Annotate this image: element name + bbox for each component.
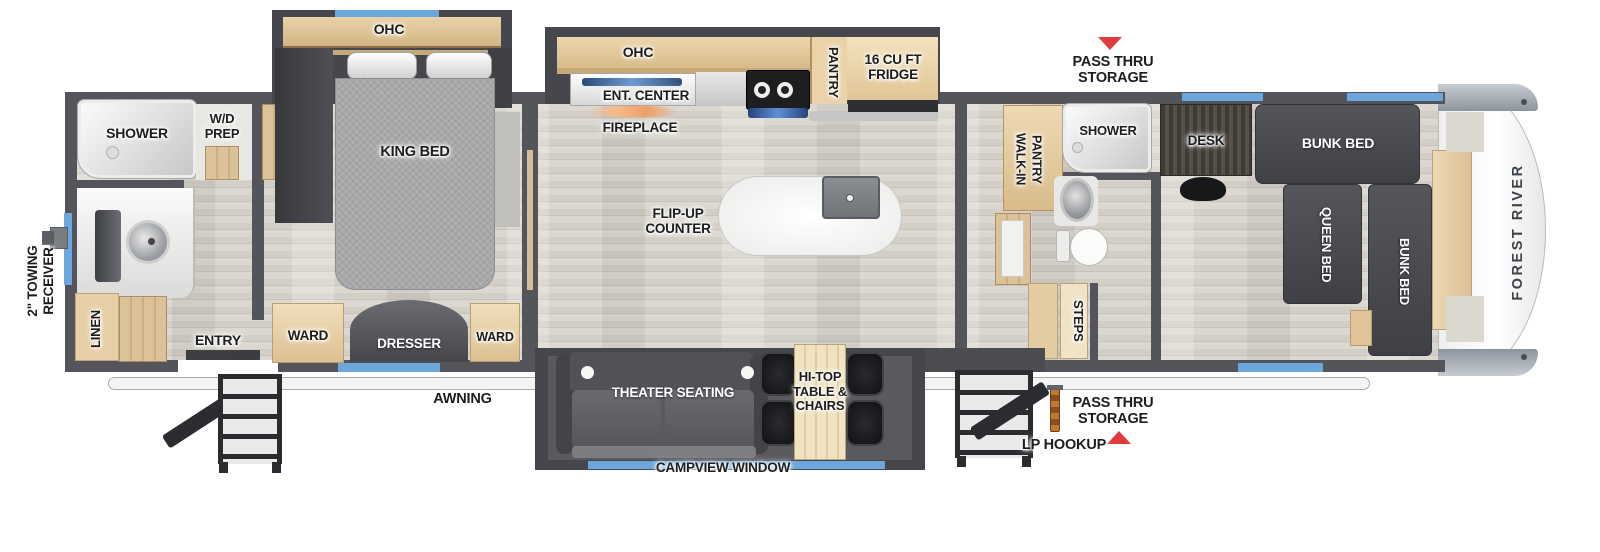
window-bottom-1 — [338, 363, 440, 372]
wall-midbath-bunkroom — [1151, 172, 1161, 360]
label-awning: AWNING — [415, 391, 510, 407]
window-top-1 — [1182, 93, 1263, 101]
king-pillow-right — [426, 52, 492, 80]
dresser — [350, 300, 468, 362]
label-steps: STEPS — [1063, 287, 1085, 355]
window-bottom-2 — [1238, 363, 1323, 372]
midbath-cabinet-door — [1001, 220, 1024, 277]
king-bed — [335, 78, 495, 290]
lp-hookup-cap — [1047, 385, 1063, 390]
label-campview-window: CAMPVIEW WINDOW — [648, 460, 798, 475]
wall-living-midbath — [955, 104, 967, 360]
mid-shower-drain — [1072, 142, 1083, 153]
desk-chair — [1180, 177, 1226, 201]
tv — [582, 78, 682, 86]
label-rear-shower: SHOWER — [90, 126, 184, 142]
bunk-step-pad — [1350, 310, 1372, 346]
label-pass-thru-bottom: PASS THRU STORAGE — [1056, 395, 1170, 427]
label-linen: LINEN — [89, 299, 105, 359]
entry-steps — [218, 374, 282, 464]
toilet-tank — [1056, 230, 1070, 262]
label-hitop-table: HI-TOP TABLE & CHAIRS — [785, 370, 855, 414]
front-cap-trim-top — [1438, 84, 1538, 111]
kitchen-counter-mid — [696, 72, 748, 106]
window-king-slide — [335, 10, 439, 17]
burner-left-center — [758, 86, 766, 94]
front-steps-foot-right — [1022, 456, 1031, 467]
burner-right-center — [781, 86, 789, 94]
cupholder-left — [581, 366, 594, 379]
label-pass-thru-top: PASS THRU STORAGE — [1056, 54, 1170, 86]
front-steps-foot-left — [957, 456, 966, 467]
label-queen-bed: QUEEN BED — [1313, 192, 1333, 298]
label-bunk-bed-right: BUNK BED — [1391, 222, 1411, 322]
label-kitchen-ohc: OHC — [608, 45, 668, 61]
window-rear-wall — [64, 213, 72, 285]
island-faucet — [846, 194, 854, 202]
label-dresser: DRESSER — [363, 337, 455, 352]
kitchen-ohc-cabinet — [557, 37, 810, 70]
cupholder-right — [741, 366, 754, 379]
label-entry: ENTRY — [180, 333, 256, 349]
cap-shelf-top — [1446, 112, 1484, 152]
label-flip-up-counter: FLIP-UP COUNTER — [636, 206, 720, 236]
label-pantry: PANTRY — [818, 41, 840, 103]
nightstand — [492, 112, 520, 227]
entry-steps-foot-right — [272, 462, 281, 473]
rear-shower-drain — [106, 146, 119, 159]
label-theater-seating: THEATER SEATING — [598, 386, 748, 401]
marker-triangle-bottom — [1107, 431, 1131, 444]
vanity-faucet — [148, 238, 155, 245]
sofa-front — [572, 446, 756, 458]
bedroom-door — [527, 150, 533, 290]
label-towing-receiver: 2" TOWING RECEIVER — [25, 221, 59, 341]
label-fireplace: FIREPLACE — [594, 120, 686, 135]
cap-rivet-bottom — [1521, 354, 1527, 360]
label-bunk-bed-top: BUNK BED — [1272, 136, 1404, 151]
king-slide-wall-left — [275, 48, 333, 223]
floorplan-canvas: FOREST RIVER — [0, 0, 1600, 552]
cap-shelf-bottom — [1446, 296, 1484, 342]
front-entry-counter — [925, 348, 1045, 372]
toilet-bowl — [1070, 228, 1108, 266]
oven-glow — [748, 108, 808, 118]
label-fridge: 16 CU FT FRIDGE — [855, 52, 931, 82]
brand-text: FOREST RIVER — [1510, 137, 1528, 327]
kitchen-counter-right — [810, 112, 938, 121]
label-mid-shower: SHOWER — [1068, 124, 1148, 139]
marker-triangle-top — [1098, 37, 1122, 50]
label-bedroom-ohc: OHC — [359, 22, 419, 38]
label-wd-prep: W/D PREP — [198, 112, 246, 141]
steps-rail — [1090, 283, 1098, 360]
cap-rivet-top — [1521, 99, 1527, 105]
wd-prep-cabinet — [205, 146, 239, 180]
king-pillow-left — [347, 52, 417, 80]
label-desk: DESK — [1178, 133, 1234, 148]
vanity-mirror — [95, 210, 121, 282]
label-ent-center: ENT. CENTER — [594, 88, 698, 103]
fireplace-glow — [586, 106, 678, 117]
label-walk-in-pantry: WALK-IN PANTRY — [1012, 112, 1054, 206]
fridge-base — [848, 100, 938, 112]
rear-bath-cabinet — [119, 296, 167, 362]
label-ward-right: WARD — [470, 330, 520, 344]
entry-steps-foot-left — [219, 462, 228, 473]
label-lp-hookup: LP HOOKUP — [1020, 437, 1108, 453]
window-top-2 — [1347, 93, 1443, 101]
wall-top-mid — [512, 92, 545, 104]
midbath-sink — [1060, 178, 1094, 222]
entry-threshold — [186, 350, 260, 360]
wall-rearbath-inner — [70, 180, 184, 188]
label-ward-left: WARD — [278, 328, 338, 343]
label-king-bed: KING BED — [353, 144, 477, 160]
